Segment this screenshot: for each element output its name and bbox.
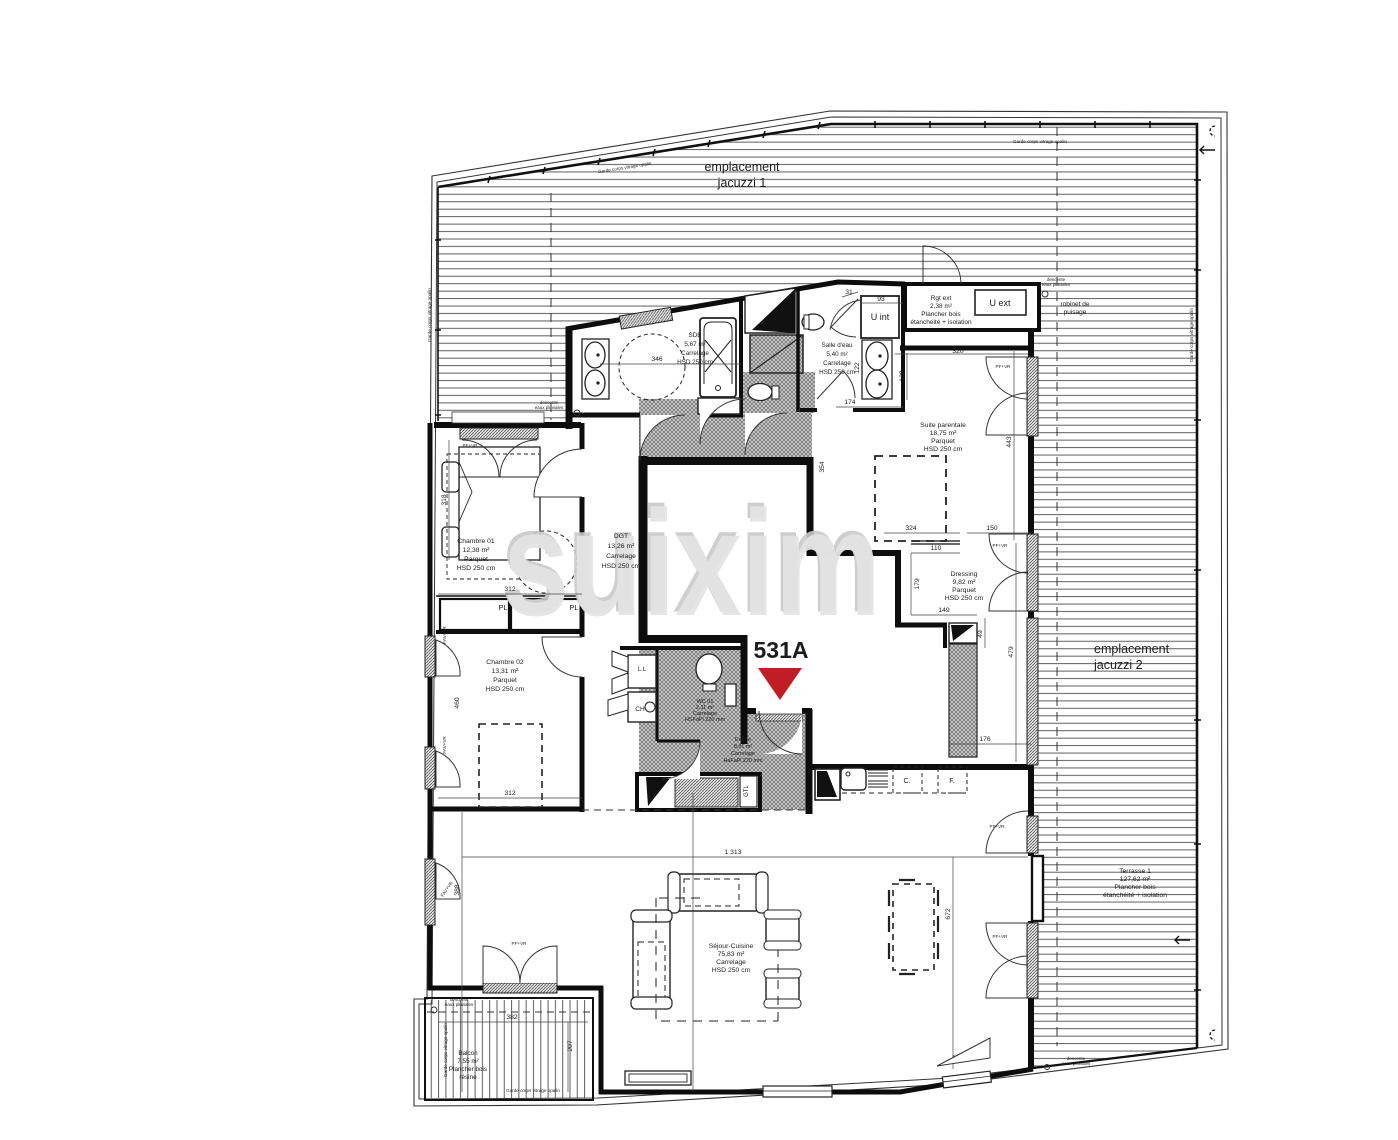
svg-text:HSFaPl 220 mm: HSFaPl 220 mm	[685, 717, 726, 723]
svg-text:étanchéité + isolation: étanchéité + isolation	[1103, 892, 1167, 899]
svg-text:puisage: puisage	[1064, 309, 1087, 316]
svg-text:Terrasse 1: Terrasse 1	[1119, 868, 1151, 875]
svg-text:jacuzzi 2: jacuzzi 2	[1093, 658, 1143, 672]
svg-text:1 313: 1 313	[724, 849, 741, 856]
svg-text:18,75 m²: 18,75 m²	[930, 430, 958, 437]
svg-text:Carrelage: Carrelage	[681, 350, 709, 357]
svg-text:PF+VR: PF+VR	[512, 941, 528, 946]
svg-text:320: 320	[952, 348, 964, 355]
svg-text:Garde corps vitrage opalin: Garde corps vitrage opalin	[443, 1023, 448, 1077]
svg-text:eaux pluviales: eaux pluviales	[445, 1002, 474, 1007]
svg-text:U int: U int	[871, 312, 890, 322]
svg-text:eaux pluviales: eaux pluviales	[1062, 1061, 1091, 1066]
svg-text:324: 324	[905, 525, 917, 532]
svg-text:Garde corps vitrage opalin: Garde corps vitrage opalin	[427, 288, 432, 342]
svg-text:207: 207	[567, 1040, 574, 1052]
svg-text:HSD 250 cm: HSD 250 cm	[945, 595, 984, 602]
svg-text:Séjour-Cuisine: Séjour-Cuisine	[709, 943, 754, 950]
svg-text:SDB: SDB	[689, 332, 702, 339]
svg-text:Parquet: Parquet	[464, 556, 488, 563]
svg-text:Carrelage: Carrelage	[606, 553, 636, 560]
svg-text:CH: CH	[635, 706, 645, 713]
svg-text:388: 388	[454, 884, 461, 896]
svg-text:PL: PL	[569, 603, 578, 612]
svg-text:13,26 m²: 13,26 m²	[608, 543, 636, 550]
svg-text:354: 354	[819, 461, 826, 473]
svg-text:Plancher bois: Plancher bois	[449, 1066, 487, 1073]
svg-text:460: 460	[454, 697, 461, 709]
svg-text:HSD 250 cm: HSD 250 cm	[712, 967, 751, 974]
svg-text:443: 443	[1006, 436, 1013, 448]
svg-text:49: 49	[977, 630, 984, 638]
svg-text:127,62 m²: 127,62 m²	[1120, 876, 1151, 883]
svg-text:150: 150	[986, 525, 998, 532]
svg-text:PF+VR: PF+VR	[996, 364, 1012, 369]
svg-text:Parquet: Parquet	[931, 438, 955, 445]
svg-text:Plancher bois: Plancher bois	[1114, 884, 1156, 891]
svg-text:Balcon: Balcon	[458, 1050, 478, 1057]
svg-text:HaFaPl 220 mm: HaFaPl 220 mm	[724, 758, 763, 764]
svg-text:PF+VR: PF+VR	[463, 443, 479, 448]
svg-text:F.: F.	[949, 778, 955, 785]
svg-text:9,82 m²: 9,82 m²	[952, 579, 976, 586]
svg-text:174: 174	[844, 399, 856, 406]
svg-text:5,40 m²: 5,40 m²	[826, 351, 847, 358]
svg-text:HSD 250 cm: HSD 250 cm	[819, 369, 855, 376]
svg-text:robinet de: robinet de	[1061, 301, 1090, 308]
svg-text:5,67 m²: 5,67 m²	[684, 341, 705, 348]
svg-text:emplacement: emplacement	[1094, 642, 1170, 656]
svg-text:Plancher bois: Plancher bois	[921, 311, 961, 318]
svg-text:479: 479	[1008, 646, 1015, 658]
svg-text:75,83 m²: 75,83 m²	[718, 951, 746, 958]
svg-text:PF+VR: PF+VR	[993, 543, 1009, 548]
svg-text:Chambre 02: Chambre 02	[486, 659, 524, 666]
svg-text:PF+VR: PF+VR	[993, 934, 1009, 939]
svg-text:93: 93	[877, 296, 885, 303]
svg-text:Parquet: Parquet	[493, 677, 517, 684]
svg-text:128: 128	[899, 370, 906, 382]
svg-text:emplacement: emplacement	[704, 160, 780, 174]
svg-text:Carrelage: Carrelage	[731, 751, 755, 757]
svg-text:Entrée: Entrée	[735, 737, 751, 743]
svg-text:L.L: L.L	[638, 667, 647, 673]
svg-text:Garde corps vitrage opalin: Garde corps vitrage opalin	[506, 1088, 560, 1093]
svg-text:12,38 m²: 12,38 m²	[463, 547, 491, 554]
svg-text:Parquet: Parquet	[952, 587, 976, 594]
svg-text:Suite parentale: Suite parentale	[920, 422, 966, 429]
svg-text:jacuzzi 1: jacuzzi 1	[717, 176, 767, 190]
svg-text:GTL: GTL	[744, 785, 750, 797]
svg-text:FAV+VR: FAV+VR	[442, 626, 447, 644]
svg-text:résine: résine	[459, 1074, 477, 1081]
svg-text:FAV+VR: FAV+VR	[442, 736, 447, 754]
svg-text:étanchéité + isolation: étanchéité + isolation	[910, 319, 972, 326]
svg-text:13,31 m²: 13,31 m²	[492, 668, 520, 675]
svg-text:Carrelage: Carrelage	[823, 360, 851, 367]
svg-text:531A: 531A	[754, 637, 809, 663]
svg-text:2,38 m²: 2,38 m²	[930, 303, 953, 310]
svg-text:DGT: DGT	[614, 533, 628, 540]
svg-text:HSD 250 cm: HSD 250 cm	[602, 563, 641, 570]
svg-text:176: 176	[979, 736, 991, 743]
svg-text:110: 110	[931, 545, 942, 552]
svg-text:HSD 250 cm: HSD 250 cm	[677, 359, 713, 366]
svg-text:HSD 250 cm: HSD 250 cm	[457, 565, 496, 572]
svg-text:122: 122	[854, 362, 861, 374]
svg-text:Garde corps vitrage opalin: Garde corps vitrage opalin	[1189, 308, 1194, 362]
svg-text:HSD 250 cm: HSD 250 cm	[924, 446, 963, 453]
svg-text:Chambre 01: Chambre 01	[457, 538, 495, 545]
svg-text:suixim: suixim	[503, 479, 881, 647]
svg-text:Salle d'eau: Salle d'eau	[822, 342, 853, 349]
svg-text:318: 318	[441, 494, 448, 506]
svg-text:Garde corps vitrage opalin: Garde corps vitrage opalin	[1013, 139, 1067, 144]
svg-text:PF+VR: PF+VR	[990, 824, 1006, 829]
svg-text:U ext: U ext	[989, 298, 1011, 308]
svg-text:HSD 250 cm: HSD 250 cm	[486, 686, 525, 693]
svg-text:149: 149	[938, 607, 950, 614]
svg-text:312: 312	[504, 586, 516, 593]
svg-text:8,81 m²: 8,81 m²	[734, 744, 752, 750]
svg-text:Dressing: Dressing	[951, 571, 978, 578]
svg-text:PL: PL	[498, 603, 507, 612]
svg-text:31: 31	[845, 289, 853, 296]
svg-text:346: 346	[651, 356, 663, 363]
svg-text:7,55 m²: 7,55 m²	[457, 1058, 478, 1065]
svg-text:672: 672	[945, 908, 952, 920]
svg-text:312: 312	[504, 790, 516, 797]
svg-text:C.: C.	[904, 778, 911, 785]
svg-text:382: 382	[506, 1014, 518, 1021]
svg-text:eaux pluviales: eaux pluviales	[1042, 282, 1071, 287]
svg-text:eaux pluviales: eaux pluviales	[535, 405, 564, 410]
svg-text:Rgt ext: Rgt ext	[931, 295, 952, 302]
svg-text:Carrelage: Carrelage	[716, 959, 746, 966]
svg-text:179: 179	[914, 578, 921, 590]
